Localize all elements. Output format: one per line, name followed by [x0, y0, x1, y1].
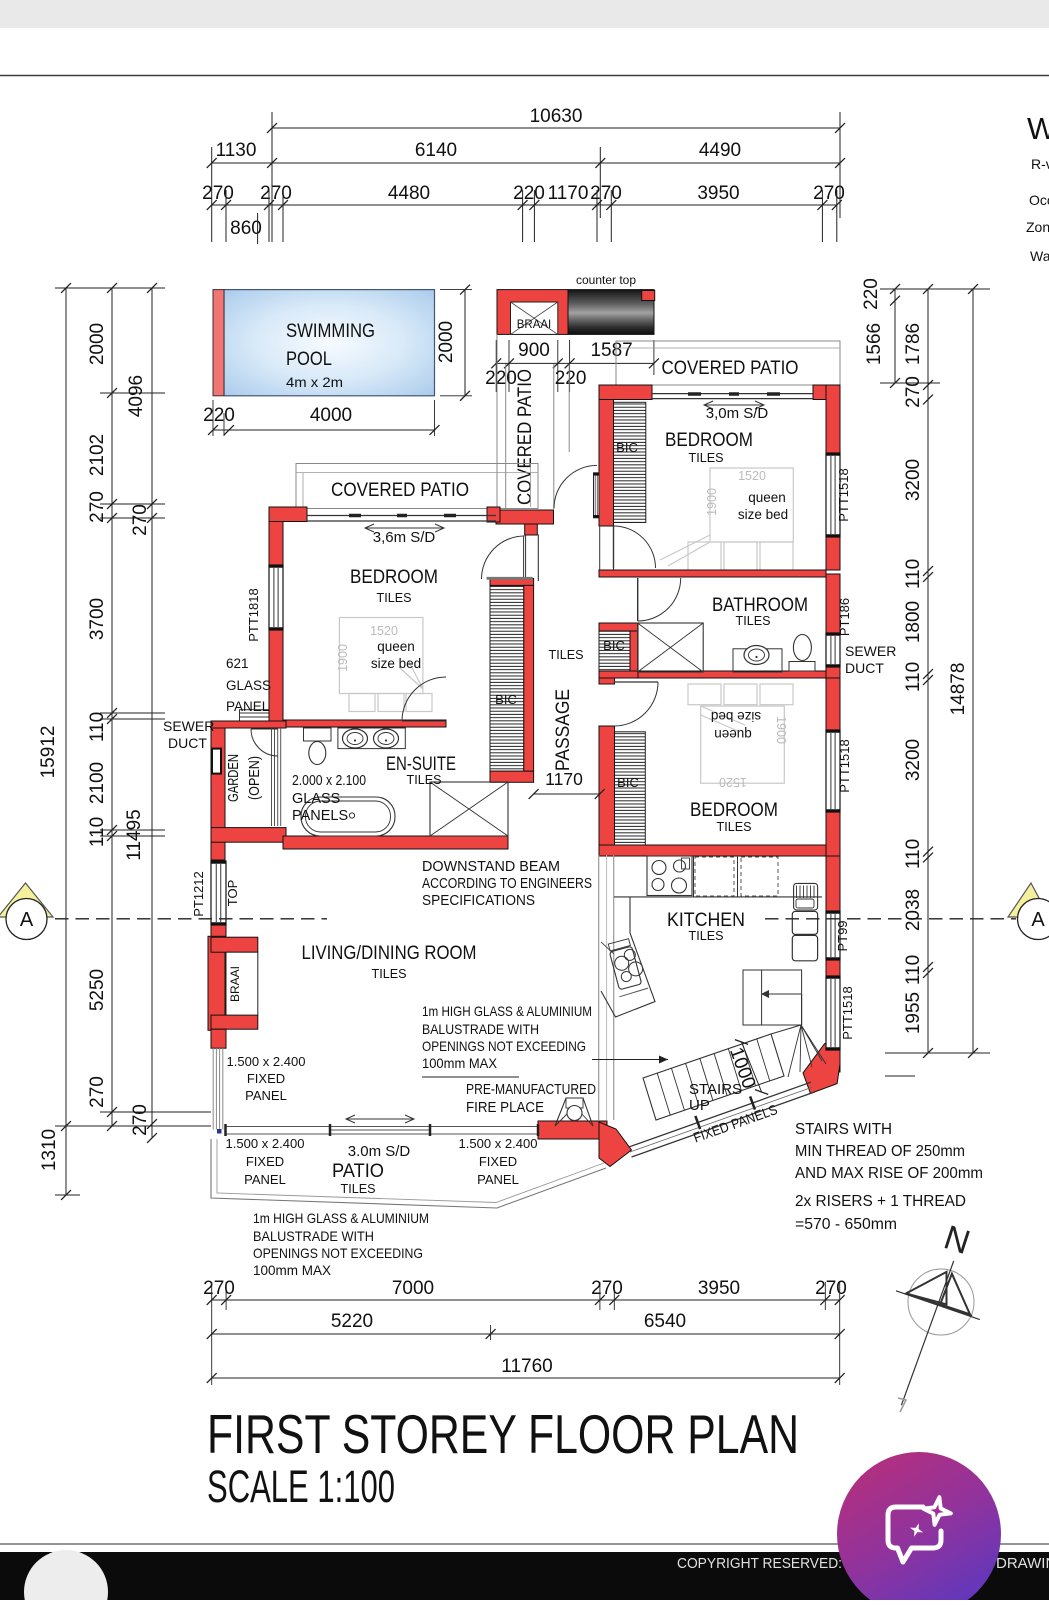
svg-text:BIC: BIC	[617, 775, 639, 790]
svg-text:110: 110	[87, 712, 108, 742]
svg-text:1m HIGH GLASS & ALUMINIUM: 1m HIGH GLASS & ALUMINIUM	[253, 1210, 429, 1226]
svg-text:270: 270	[202, 183, 234, 204]
svg-text:2x RISERS + 1 THREAD: 2x RISERS + 1 THREAD	[795, 1193, 966, 1210]
svg-text:TILES: TILES	[689, 450, 724, 465]
svg-text:size bed: size bed	[371, 656, 421, 671]
svg-text:3950: 3950	[697, 183, 739, 204]
svg-text:TOP: TOP	[225, 880, 240, 907]
svg-text:LIVING/DINING ROOM: LIVING/DINING ROOM	[302, 943, 477, 964]
svg-text:220: 220	[861, 278, 882, 310]
svg-text:PANEL: PANEL	[226, 699, 270, 714]
svg-text:1587: 1587	[590, 340, 632, 361]
svg-text:2000: 2000	[436, 321, 457, 363]
svg-text:A: A	[1031, 909, 1045, 931]
svg-text:BIC: BIC	[616, 440, 638, 455]
svg-text:FIRE PLACE: FIRE PLACE	[466, 1100, 544, 1116]
svg-text:PTT1518: PTT1518	[836, 468, 851, 521]
svg-text:PTT1818: PTT1818	[246, 588, 261, 641]
svg-text:PT99: PT99	[835, 920, 850, 951]
svg-text:COVERED PATIO: COVERED PATIO	[662, 358, 799, 379]
svg-text:3,6m S/D: 3,6m S/D	[373, 529, 436, 546]
svg-text:SPECIFICATIONS: SPECIFICATIONS	[422, 892, 535, 909]
svg-text:1170: 1170	[545, 769, 583, 789]
svg-text:270: 270	[203, 1278, 235, 1299]
svg-text:PANELS: PANELS	[292, 808, 348, 824]
svg-text:11495: 11495	[124, 809, 145, 860]
svg-text:1786: 1786	[903, 323, 924, 365]
svg-text:900: 900	[518, 340, 550, 361]
svg-text:270: 270	[903, 376, 924, 408]
svg-text:2038: 2038	[903, 889, 924, 931]
svg-text:=570 - 650mm: =570 - 650mm	[795, 1216, 897, 1233]
svg-text:TILES: TILES	[549, 647, 584, 662]
svg-text:OPENINGS NOT EXCEEDING: OPENINGS NOT EXCEEDING	[253, 1245, 423, 1261]
svg-text:POOL: POOL	[286, 349, 332, 370]
svg-text:W: W	[1027, 111, 1049, 146]
svg-text:MIN THREAD OF 250mm: MIN THREAD OF 250mm	[795, 1143, 965, 1160]
svg-text:1310: 1310	[39, 1129, 60, 1171]
svg-text:3700: 3700	[87, 598, 108, 640]
svg-text:110: 110	[903, 662, 924, 692]
svg-text:7000: 7000	[392, 1278, 434, 1299]
svg-text:1170: 1170	[548, 183, 589, 204]
svg-text:PTT1518: PTT1518	[840, 986, 855, 1039]
svg-text:GLASS: GLASS	[292, 791, 340, 807]
svg-text:(OPEN): (OPEN)	[246, 756, 263, 800]
svg-text:A: A	[20, 909, 34, 931]
svg-text:DOWNSTAND BEAM: DOWNSTAND BEAM	[422, 858, 560, 875]
svg-text:COVERED PATIO: COVERED PATIO	[515, 369, 536, 505]
svg-text:1900: 1900	[705, 488, 719, 516]
svg-text:4000: 4000	[310, 405, 352, 426]
svg-text:TILES: TILES	[377, 590, 412, 605]
svg-text:11760: 11760	[501, 1356, 552, 1377]
svg-text:3200: 3200	[903, 739, 924, 781]
svg-text:110: 110	[903, 955, 924, 985]
svg-text:10630: 10630	[530, 106, 583, 127]
svg-text:270: 270	[130, 1104, 151, 1136]
svg-text:UP: UP	[689, 1097, 710, 1114]
svg-text:270: 270	[87, 1076, 108, 1108]
svg-text:SCALE 1:100: SCALE 1:100	[207, 1461, 395, 1512]
svg-text:4096: 4096	[126, 375, 147, 417]
svg-text:4490: 4490	[699, 140, 741, 161]
svg-text:TILES: TILES	[736, 613, 771, 628]
svg-text:BEDROOM: BEDROOM	[350, 567, 438, 588]
svg-text:FIXED: FIXED	[246, 1154, 284, 1169]
svg-text:PRE-MANUFACTURED: PRE-MANUFACTURED	[466, 1082, 596, 1098]
svg-text:6540: 6540	[644, 1311, 686, 1332]
svg-text:100mm MAX: 100mm MAX	[422, 1055, 498, 1071]
svg-text:TILES: TILES	[717, 819, 752, 834]
svg-text:110: 110	[903, 559, 924, 589]
svg-text:R-va: R-va	[1031, 156, 1049, 172]
svg-text:100mm MAX: 100mm MAX	[253, 1262, 332, 1278]
svg-text:220: 220	[513, 183, 545, 204]
svg-text:PANEL: PANEL	[477, 1172, 519, 1187]
svg-text:BALUSTRADE WITH: BALUSTRADE WITH	[422, 1021, 539, 1037]
svg-text:110: 110	[87, 817, 108, 847]
svg-text:4480: 4480	[388, 183, 430, 204]
svg-text:1.500 x 2.400: 1.500 x 2.400	[227, 1054, 306, 1069]
svg-text:AND MAX RISE OF 200mm: AND MAX RISE OF 200mm	[795, 1165, 983, 1182]
svg-text:DUCT: DUCT	[845, 660, 884, 676]
svg-text:STAIRS WITH: STAIRS WITH	[795, 1121, 892, 1138]
svg-text:BEDROOM: BEDROOM	[690, 800, 778, 821]
svg-text:220: 220	[555, 368, 587, 389]
svg-text:1520: 1520	[719, 775, 747, 789]
svg-text:110: 110	[903, 839, 924, 869]
svg-text:1520: 1520	[370, 624, 398, 638]
svg-text:1900: 1900	[774, 716, 788, 744]
svg-text:BIC: BIC	[603, 638, 625, 653]
svg-text:BRAAI: BRAAI	[517, 319, 552, 331]
svg-text:TILES: TILES	[407, 772, 442, 787]
svg-text:3,0m S/D: 3,0m S/D	[706, 405, 769, 422]
svg-text:270: 270	[590, 183, 622, 204]
svg-text:3950: 3950	[698, 1278, 740, 1299]
svg-text:270: 270	[260, 183, 292, 204]
svg-text:6140: 6140	[415, 140, 457, 161]
svg-text:3.0m S/D: 3.0m S/D	[348, 1143, 411, 1160]
svg-text:TILES: TILES	[341, 1181, 376, 1196]
svg-text:PTT1518: PTT1518	[837, 739, 852, 792]
svg-text:621: 621	[226, 656, 249, 671]
svg-text:SEWER: SEWER	[845, 643, 896, 659]
svg-text:1955: 1955	[903, 992, 924, 1034]
svg-text:OPENINGS NOT EXCEEDING: OPENINGS NOT EXCEEDING	[422, 1038, 586, 1054]
svg-text:5220: 5220	[331, 1311, 373, 1332]
svg-text:SEWER: SEWER	[163, 718, 214, 734]
svg-text:2.000 x 2.100: 2.000 x 2.100	[292, 773, 366, 789]
svg-text:PT1212: PT1212	[191, 871, 206, 917]
svg-text:BALUSTRADE WITH: BALUSTRADE WITH	[253, 1228, 374, 1244]
svg-text:270: 270	[815, 1278, 847, 1299]
svg-text:1130: 1130	[216, 140, 257, 161]
svg-text:2100: 2100	[87, 762, 108, 804]
svg-text:PANEL: PANEL	[245, 1088, 287, 1103]
svg-text:DUCT: DUCT	[168, 735, 207, 751]
svg-text:DRAWING: DRAWING	[996, 1555, 1049, 1572]
svg-text:14878: 14878	[948, 663, 969, 716]
svg-text:220: 220	[485, 368, 517, 389]
svg-text:270: 270	[87, 491, 108, 523]
svg-text:FIRST STOREY FLOOR PLAN: FIRST STOREY FLOOR PLAN	[207, 1403, 799, 1465]
svg-text:BIC: BIC	[495, 692, 517, 707]
svg-text:queen: queen	[714, 727, 752, 742]
svg-text:PT186: PT186	[837, 598, 852, 636]
svg-text:860: 860	[230, 218, 262, 239]
svg-text:220: 220	[203, 405, 235, 426]
svg-text:BEDROOM: BEDROOM	[665, 430, 753, 451]
svg-text:TILES: TILES	[372, 966, 407, 981]
svg-text:size bed: size bed	[738, 507, 788, 522]
svg-text:SWIMMING: SWIMMING	[286, 321, 375, 342]
svg-text:PATIO: PATIO	[332, 1161, 384, 1182]
svg-text:BRAAI: BRAAI	[228, 966, 242, 1002]
svg-text:COVERED PATIO: COVERED PATIO	[331, 480, 469, 501]
svg-text:FIXED: FIXED	[479, 1154, 517, 1169]
svg-text:counter top: counter top	[576, 273, 636, 287]
svg-text:1566: 1566	[864, 323, 885, 365]
svg-text:ACCORDING TO ENGINEERS: ACCORDING TO ENGINEERS	[422, 875, 592, 892]
svg-text:1800: 1800	[903, 601, 924, 643]
svg-text:1520: 1520	[738, 469, 766, 483]
svg-text:Zon: Zon	[1026, 219, 1049, 235]
svg-text:3200: 3200	[903, 459, 924, 501]
svg-text:2102: 2102	[87, 434, 108, 476]
svg-text:FIXED: FIXED	[247, 1071, 285, 1086]
svg-text:queen: queen	[377, 639, 415, 654]
svg-text:1m HIGH GLASS & ALUMINIUM: 1m HIGH GLASS & ALUMINIUM	[422, 1003, 592, 1019]
svg-text:queen: queen	[748, 490, 786, 505]
svg-text:270: 270	[130, 504, 151, 536]
svg-text:GARDEN: GARDEN	[225, 754, 242, 802]
svg-text:Wal: Wal	[1030, 248, 1049, 264]
svg-text:size bed: size bed	[711, 709, 761, 724]
svg-text:Occ: Occ	[1029, 192, 1049, 208]
svg-text:5250: 5250	[87, 969, 108, 1011]
svg-text:PASSAGE: PASSAGE	[553, 689, 574, 771]
svg-text:TILES: TILES	[689, 928, 724, 943]
svg-text:COPYRIGHT RESERVED:: COPYRIGHT RESERVED:	[677, 1555, 842, 1572]
svg-text:2000: 2000	[87, 323, 108, 365]
svg-text:STAIRS: STAIRS	[689, 1081, 742, 1098]
svg-text:270: 270	[591, 1278, 623, 1299]
svg-text:4m x 2m: 4m x 2m	[286, 374, 343, 390]
svg-text:1900: 1900	[336, 644, 350, 672]
svg-text:PANEL: PANEL	[244, 1172, 286, 1187]
svg-text:1.500 x 2.400: 1.500 x 2.400	[459, 1136, 538, 1151]
svg-text:15912: 15912	[38, 726, 59, 779]
svg-text:1.500 x 2.400: 1.500 x 2.400	[226, 1136, 305, 1151]
svg-text:GLASS: GLASS	[226, 678, 271, 693]
